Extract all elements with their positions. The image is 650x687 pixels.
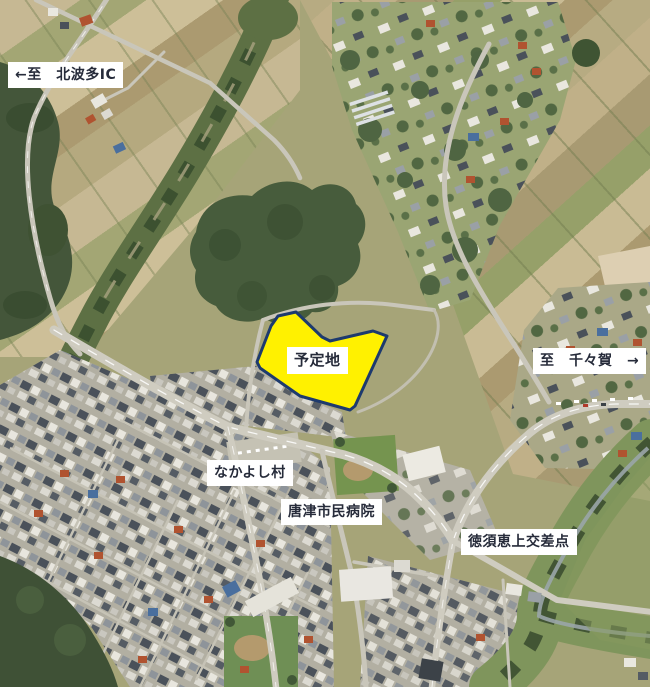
label-tokusueue-intersection: 徳須恵上交差点 <box>461 529 577 555</box>
aerial-map: ←至 北波多IC 予定地 至 千々賀 → なかよし村 唐津市民病院 徳須恵上交差… <box>0 0 650 687</box>
label-to-kitahata-ic: ←至 北波多IC <box>8 62 123 88</box>
label-planned-site: 予定地 <box>287 347 348 374</box>
hospital-building <box>339 566 393 602</box>
river-southeast <box>492 442 650 687</box>
village-area <box>332 2 650 312</box>
forest-west <box>0 62 72 340</box>
label-nakayoshi-mura: なかよし村 <box>207 460 293 486</box>
label-karatsu-city-hospital: 唐津市民病院 <box>281 499 382 525</box>
label-to-chichiga: 至 千々賀 → <box>533 348 646 374</box>
aerial-basemap <box>0 0 650 687</box>
